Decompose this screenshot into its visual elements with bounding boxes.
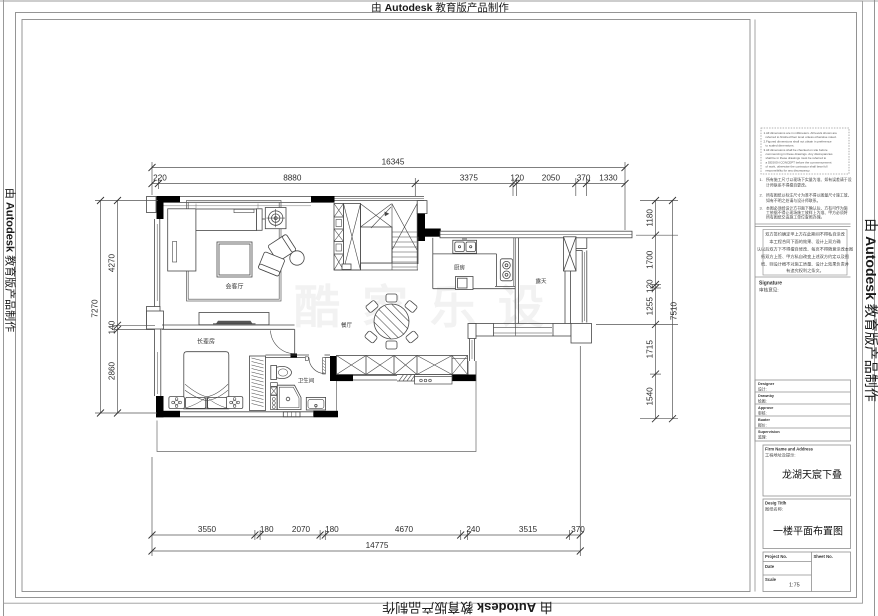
svg-text:120: 120 (510, 174, 524, 183)
svg-text:酷家乐设: 酷家乐设 (294, 281, 566, 333)
svg-text:140: 140 (108, 320, 117, 334)
svg-text:1715: 1715 (646, 340, 655, 359)
svg-text:3550: 3550 (198, 525, 217, 534)
svg-text:龙湖天宸下叠: 龙湖天宸下叠 (782, 468, 842, 481)
svg-text:120: 120 (646, 279, 655, 293)
svg-text:一楼平面布置图: 一楼平面布置图 (773, 525, 843, 538)
svg-text:本工程合同下面的效果、设计上双方确: 本工程合同下面的效果、设计上双方确 (769, 238, 840, 245)
svg-text:会客厅: 会客厅 (225, 283, 243, 291)
svg-text:Project No.: Project No. (765, 554, 787, 559)
svg-text:纸、则设计概不对施工质量、设计上效果负责并: 纸、则设计概不对施工质量、设计上效果负责并 (761, 261, 849, 268)
svg-text:厨房: 厨房 (454, 264, 466, 272)
svg-text:220: 220 (153, 174, 167, 183)
svg-text:Approve: Approve (758, 406, 773, 410)
svg-text:1.: 1. (760, 177, 763, 182)
svg-text:Sheet No.: Sheet No. (814, 554, 833, 559)
svg-text:180: 180 (260, 525, 274, 534)
svg-text:16345: 16345 (382, 158, 405, 167)
svg-text:4670: 4670 (395, 525, 414, 534)
svg-text:Firm Name and Address: Firm Name and Address (765, 447, 814, 452)
svg-text:图纸名称:: 图纸名称: (765, 506, 783, 513)
svg-text:Buater: Buater (758, 418, 771, 422)
svg-text:由 Autodesk 教育版产品制作: 由 Autodesk 教育版产品制作 (863, 218, 878, 402)
svg-text:所有施工尺寸以现场下实量为准、如有误差请于设: 所有施工尺寸以现场下实量为准、如有误差请于设 (766, 177, 852, 182)
svg-text:餐厅: 餐厅 (341, 321, 353, 329)
svg-text:报价:: 报价: (758, 423, 767, 428)
svg-text:4270: 4270 (108, 253, 117, 272)
svg-text:14775: 14775 (366, 541, 389, 550)
svg-text:纸双方上签、甲方私自改变上述双方约定以及图: 纸双方上签、甲方私自改变上述双方约定以及图 (761, 253, 849, 260)
svg-text:1:75: 1:75 (789, 583, 800, 589)
svg-text:所有图纸交由施工单位查照办理。: 所有图纸交由施工单位查照办理。 (766, 215, 824, 220)
svg-text:1540: 1540 (646, 387, 655, 406)
svg-text:1700: 1700 (646, 250, 655, 269)
svg-text:2.: 2. (760, 193, 763, 198)
svg-text:所有图纸以标注尺寸为准不得以图量尺寸施工放、: 所有图纸以标注尺寸为准不得以图量尺寸施工放、 (766, 193, 852, 198)
svg-text:绘图:: 绘图: (758, 399, 767, 404)
svg-text:由 Autodesk 教育版产品制作: 由 Autodesk 教育版产品制作 (4, 188, 18, 332)
svg-text:露天: 露天 (535, 278, 547, 285)
svg-text:双方签约确定甲上方在此期间不得私自涂改: 双方签约确定甲上方在此期间不得私自涂改 (765, 231, 845, 238)
svg-text:7510: 7510 (669, 301, 678, 320)
svg-text:3515: 3515 (519, 525, 538, 534)
svg-text:审核意见:: 审核意见: (759, 287, 779, 294)
svg-text:responsibility for any discrep: responsibility for any discrepancy. (766, 168, 811, 172)
svg-text:监理:: 监理: (758, 435, 767, 440)
svg-text:7270: 7270 (91, 299, 100, 318)
svg-text:1255: 1255 (646, 297, 655, 316)
svg-text:认以后双方下不得擅自修改、每页不得随意涂改本图: 认以后双方下不得擅自修改、每页不得随意涂改本图 (757, 246, 853, 253)
svg-text:3375: 3375 (460, 174, 479, 183)
svg-text:Drawnby: Drawnby (758, 394, 775, 398)
svg-text:1330: 1330 (599, 174, 618, 183)
svg-text:卫生间: 卫生间 (298, 377, 315, 385)
svg-text:有追究权利之条文。: 有追究权利之条文。 (786, 267, 824, 274)
svg-text:2050: 2050 (542, 174, 561, 183)
svg-text:长辈房: 长辈房 (197, 338, 215, 346)
svg-text:如有不明之处请与设计师联系。: 如有不明之处请与设计师联系。 (766, 198, 820, 203)
svg-text:240: 240 (466, 525, 480, 534)
svg-text:Date: Date (765, 564, 775, 569)
svg-text:计师联系不得擅自更改。: 计师联系不得擅自更改。 (766, 183, 809, 188)
svg-text:设计:: 设计: (758, 387, 767, 392)
svg-text:370: 370 (577, 174, 591, 183)
svg-text:180: 180 (325, 525, 339, 534)
svg-text:2860: 2860 (108, 361, 117, 380)
svg-text:3.: 3. (760, 206, 763, 211)
svg-text:Supervision: Supervision (758, 430, 780, 434)
svg-text:审核:: 审核: (758, 411, 767, 416)
svg-text:2070: 2070 (292, 525, 311, 534)
svg-text:工程地址及提示:: 工程地址及提示: (765, 452, 795, 459)
svg-text:370: 370 (571, 525, 585, 534)
svg-text:由 Autodesk 教育版产品制作: 由 Autodesk 教育版产品制作 (382, 600, 552, 615)
svg-text:Designer: Designer (758, 382, 775, 386)
svg-text:8880: 8880 (283, 174, 302, 183)
svg-text:Signature: Signature (759, 281, 782, 287)
svg-text:Scale: Scale (765, 577, 777, 582)
svg-text:1180: 1180 (646, 209, 655, 227)
svg-text:由 Autodesk 教育版产品制作: 由 Autodesk 教育版产品制作 (371, 1, 509, 14)
svg-text:Desig Titlh: Desig Titlh (765, 501, 787, 506)
